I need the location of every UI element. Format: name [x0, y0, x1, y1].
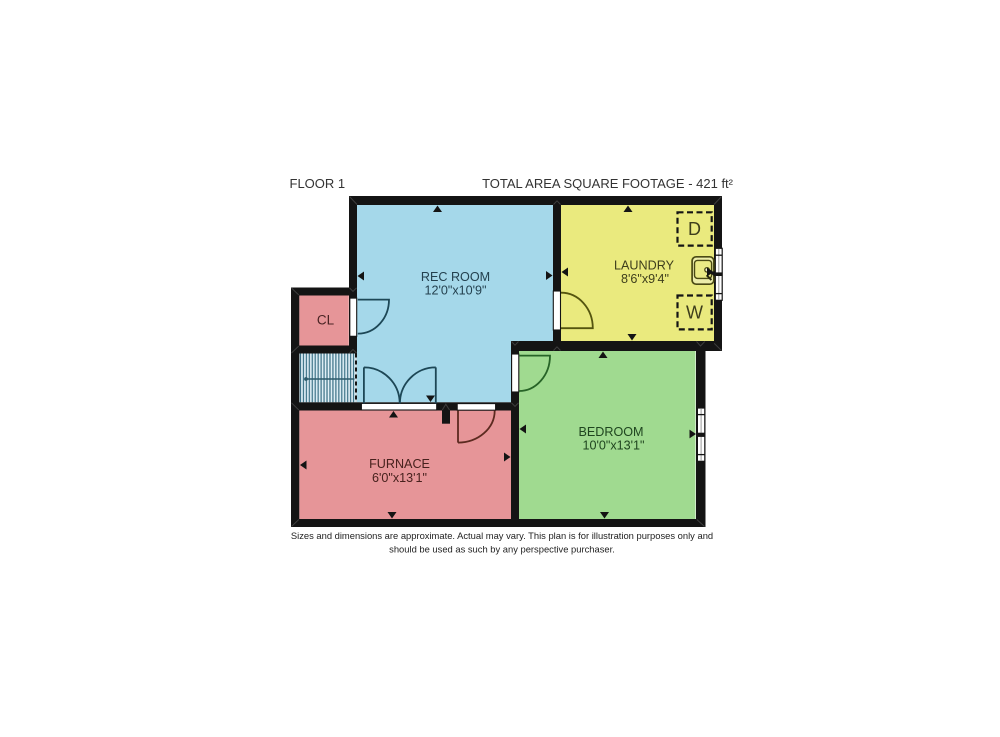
svg-text:BEDROOM: BEDROOM — [578, 425, 643, 439]
svg-text:LAUNDRY: LAUNDRY — [614, 259, 675, 273]
svg-text:TOTAL AREA SQUARE FOOTAGE - 42: TOTAL AREA SQUARE FOOTAGE - 421 ft² — [482, 176, 734, 191]
svg-text:10'0"x13'1": 10'0"x13'1" — [582, 439, 644, 453]
svg-text:12'0"x10'9": 12'0"x10'9" — [424, 284, 486, 298]
svg-text:D: D — [688, 219, 701, 239]
svg-text:Sizes and dimensions are appro: Sizes and dimensions are approximate. Ac… — [291, 530, 713, 541]
svg-text:REC ROOM: REC ROOM — [421, 270, 490, 284]
svg-text:W: W — [686, 302, 703, 322]
svg-text:CL: CL — [317, 313, 335, 328]
svg-text:6'0"x13'1": 6'0"x13'1" — [372, 471, 427, 485]
svg-text:FLOOR 1: FLOOR 1 — [290, 176, 346, 191]
svg-text:should be used as such by any: should be used as such by any perspectiv… — [389, 543, 615, 554]
svg-text:8'6"x9'4": 8'6"x9'4" — [621, 272, 669, 286]
svg-text:FURNACE: FURNACE — [369, 457, 430, 471]
